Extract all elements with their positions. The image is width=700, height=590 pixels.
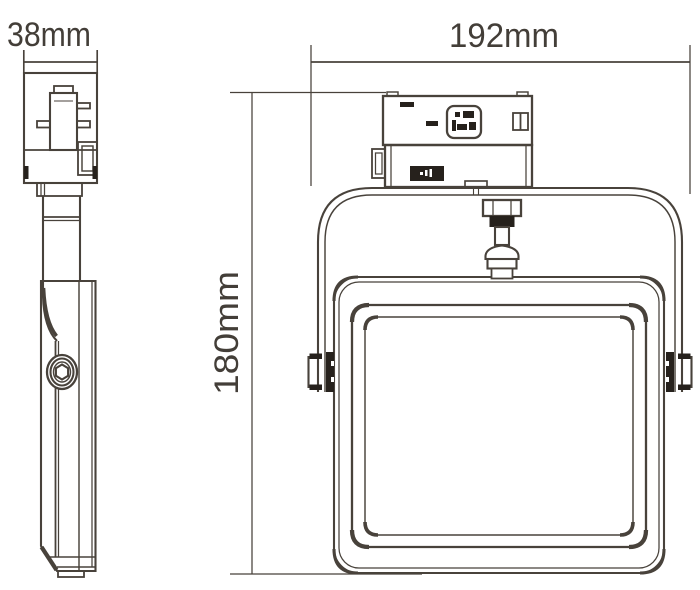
front-width-label: 192mm bbox=[449, 17, 559, 55]
pivot-joint-side bbox=[47, 355, 77, 389]
technical-drawing-canvas: 38mm bbox=[0, 0, 700, 590]
chamfer-edge bbox=[42, 547, 57, 570]
adjustment-stem bbox=[483, 200, 521, 279]
track-floodlight-dimension-drawing: 38mm bbox=[0, 0, 700, 590]
front-height-label: 180mm bbox=[208, 271, 246, 395]
lamp-body bbox=[334, 277, 664, 573]
hinge-plate bbox=[326, 352, 334, 392]
side-switch bbox=[513, 113, 528, 130]
contact-pin bbox=[77, 121, 90, 128]
lamp-head-front bbox=[334, 277, 664, 573]
track-adapter-front bbox=[383, 92, 532, 145]
dimension-front-width: 192mm bbox=[311, 17, 690, 194]
left-pivot-knob bbox=[309, 352, 335, 392]
right-pivot-knob bbox=[666, 352, 692, 392]
hex-bolt-icon bbox=[56, 365, 68, 380]
dimension-side-width: 38mm bbox=[7, 16, 98, 74]
certification-label-icon bbox=[447, 106, 481, 138]
front-view: 192mm 180mm bbox=[208, 17, 692, 574]
driver-label bbox=[410, 166, 444, 181]
track-connector-side bbox=[50, 93, 77, 150]
hinge-plate bbox=[666, 352, 674, 392]
contact-pin bbox=[37, 121, 50, 128]
track-adapter-side bbox=[24, 73, 97, 183]
stem-collar bbox=[490, 216, 515, 227]
stem-bell bbox=[486, 246, 519, 260]
side-view: 38mm bbox=[7, 16, 98, 577]
contact-pin bbox=[77, 103, 90, 109]
adapter-neck bbox=[37, 183, 82, 196]
stem-nut bbox=[483, 200, 521, 216]
side-width-label: 38mm bbox=[7, 16, 91, 54]
